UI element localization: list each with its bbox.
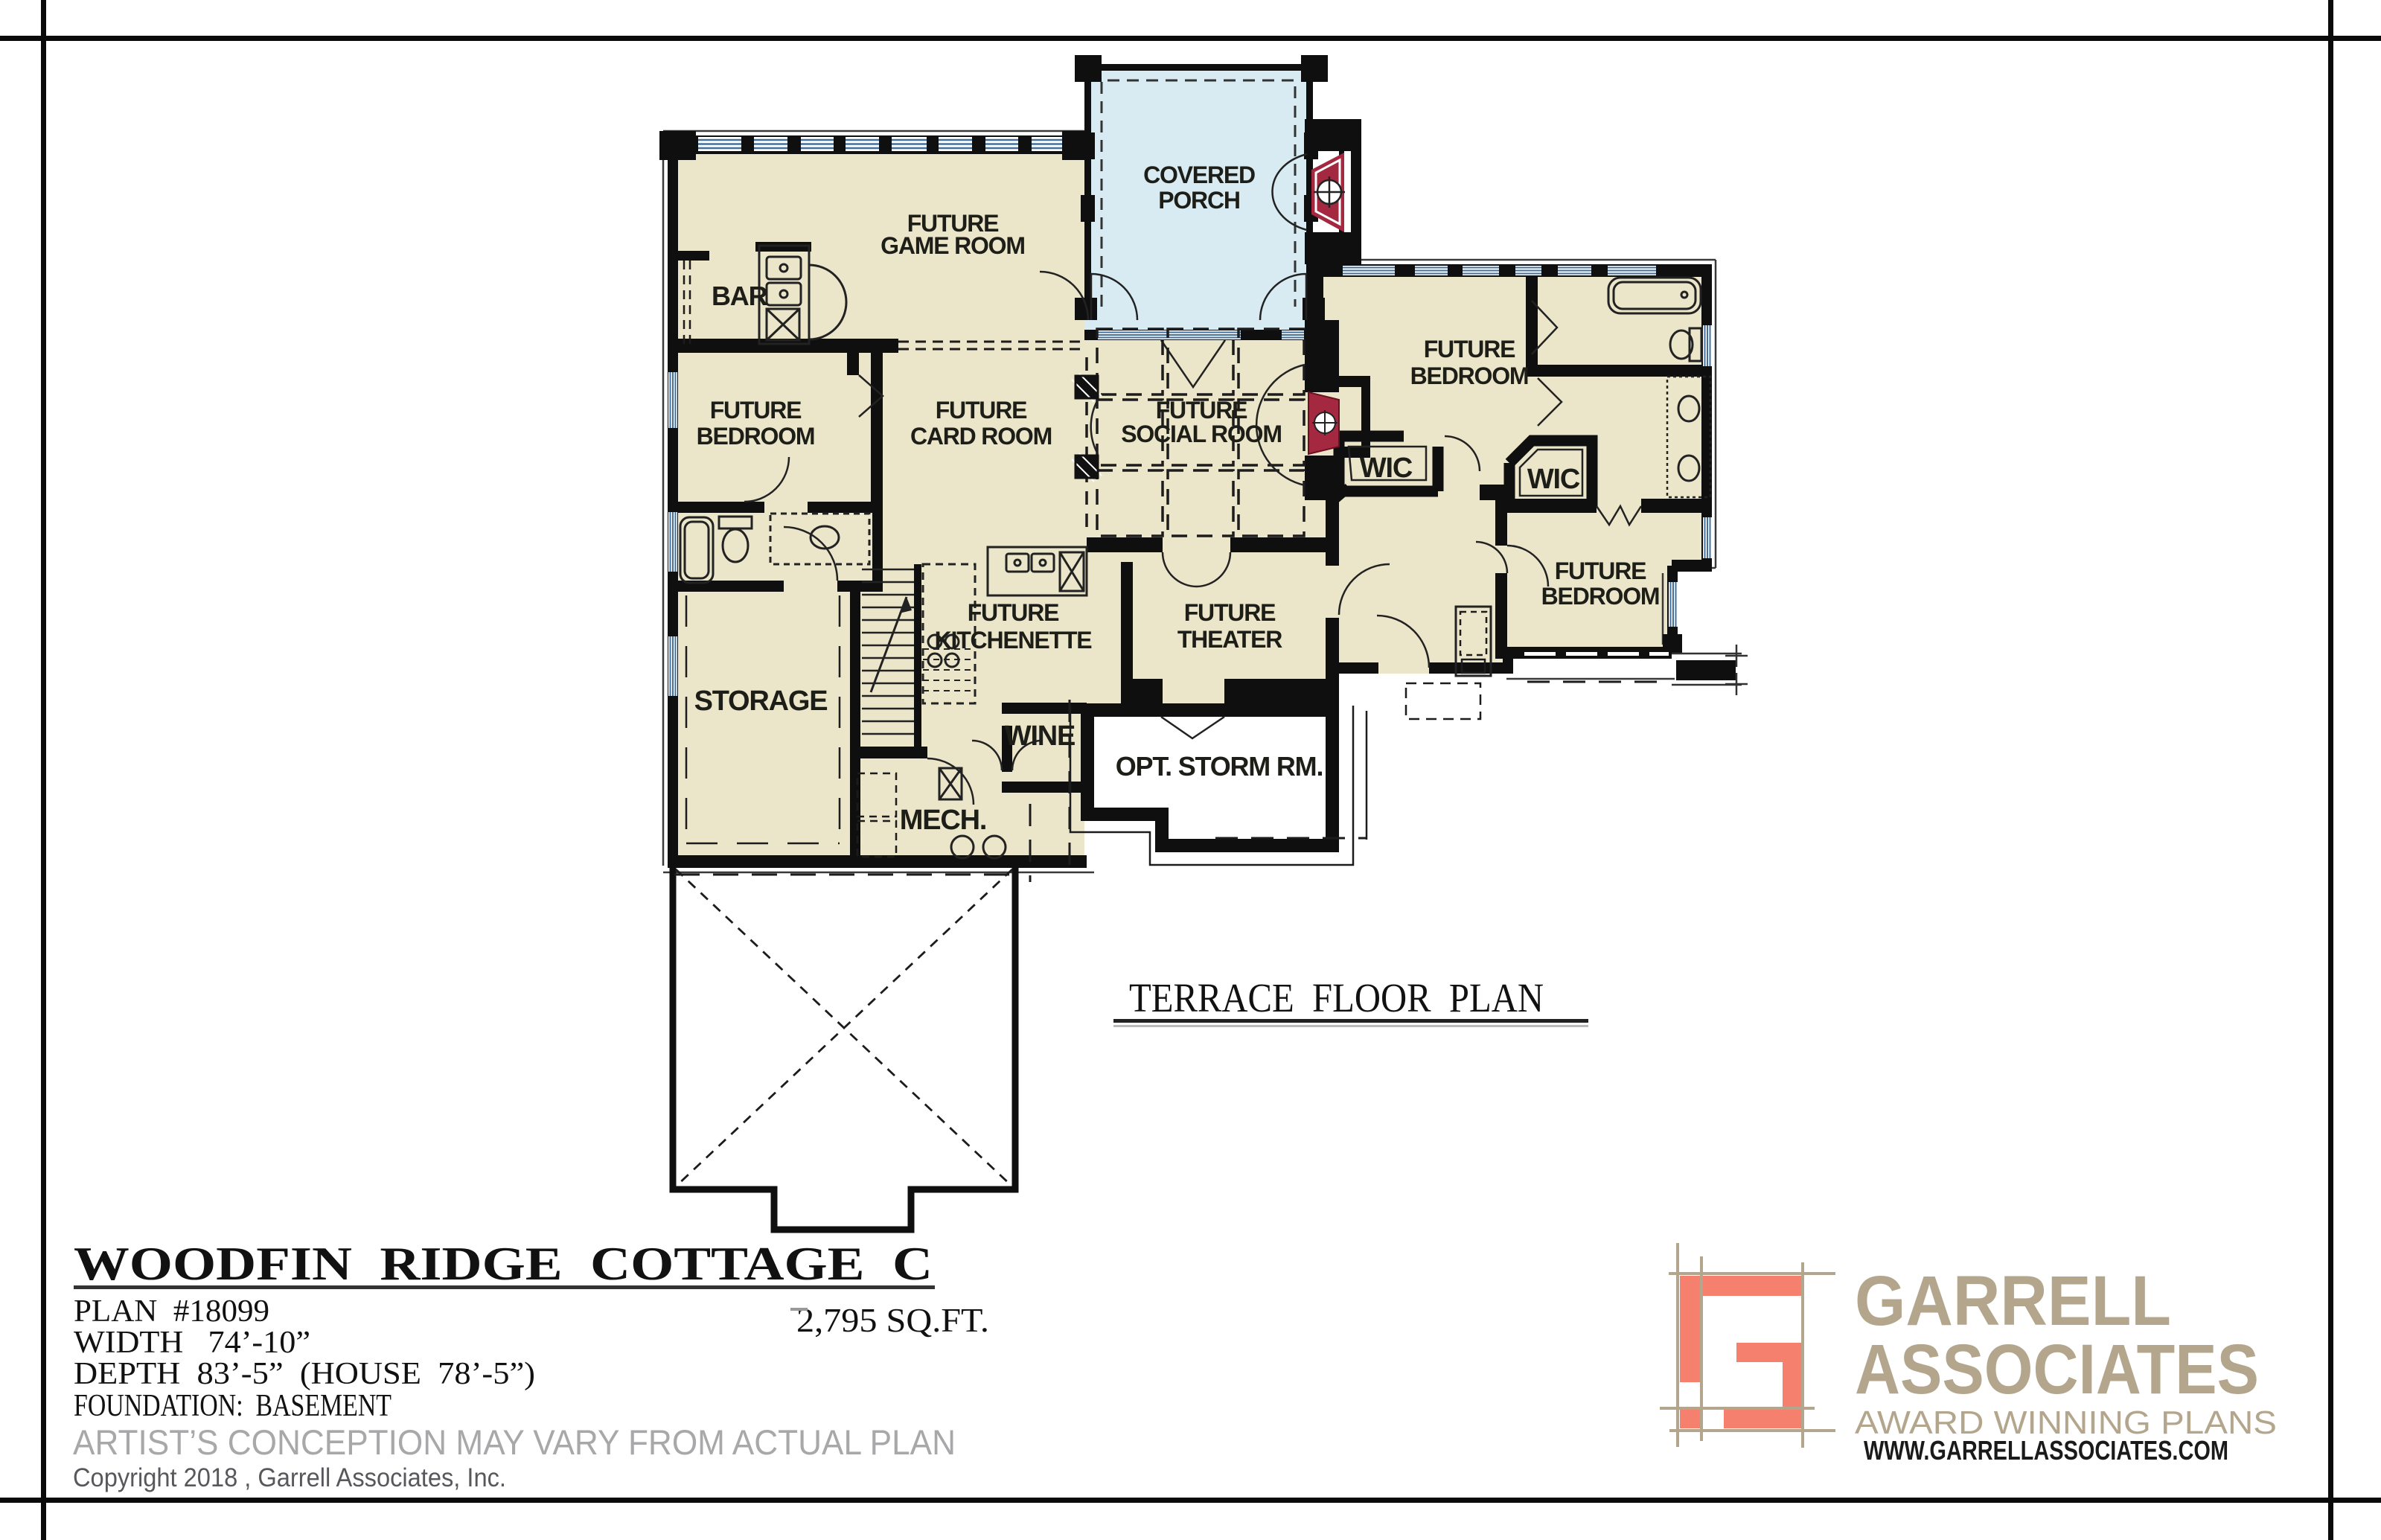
svg-text:MECH.: MECH. xyxy=(900,805,986,836)
svg-text:2,795 SQ.FT.: 2,795 SQ.FT. xyxy=(796,1301,989,1339)
svg-text:WOODFIN RIDGE COTTAGE C: WOODFIN RIDGE COTTAGE C xyxy=(74,1237,933,1290)
svg-text:COVERED: COVERED xyxy=(1143,162,1255,188)
svg-text:BAR: BAR xyxy=(712,281,768,311)
svg-text:FUTURE: FUTURE xyxy=(1555,557,1646,584)
svg-text:BEDROOM: BEDROOM xyxy=(1410,362,1529,389)
svg-text:OPT. STORM RM.: OPT. STORM RM. xyxy=(1116,751,1323,782)
svg-text:FUTURE: FUTURE xyxy=(968,599,1059,626)
svg-text:WIC: WIC xyxy=(1527,464,1580,495)
svg-text:STORAGE: STORAGE xyxy=(694,686,828,717)
svg-text:THEATER: THEATER xyxy=(1177,626,1282,653)
svg-text:BEDROOM: BEDROOM xyxy=(697,423,815,450)
svg-text:ASSOCIATES: ASSOCIATES xyxy=(1855,1330,2259,1409)
svg-text:FUTURE: FUTURE xyxy=(1156,397,1247,424)
svg-text:FUTURE: FUTURE xyxy=(710,397,802,424)
svg-text:FUTURE: FUTURE xyxy=(936,397,1027,424)
svg-text:GAME ROOM: GAME ROOM xyxy=(881,232,1025,259)
svg-text:FUTURE: FUTURE xyxy=(1424,336,1515,362)
svg-text:BEDROOM: BEDROOM xyxy=(1541,583,1660,610)
svg-text:PORCH: PORCH xyxy=(1158,187,1240,214)
svg-text:GARRELL: GARRELL xyxy=(1855,1262,2171,1341)
svg-text:WINE: WINE xyxy=(1005,721,1075,752)
svg-text:SOCIAL ROOM: SOCIAL ROOM xyxy=(1121,421,1282,447)
svg-text:PLAN #18099: PLAN #18099 xyxy=(74,1294,269,1329)
svg-text:KITCHENETTE: KITCHENETTE xyxy=(935,627,1093,654)
svg-text:WWW.GARRELLASSOCIATES.COM: WWW.GARRELLASSOCIATES.COM xyxy=(1864,1435,2228,1466)
svg-text:FOUNDATION: BASEMENT: FOUNDATION: BASEMENT xyxy=(74,1389,391,1423)
svg-text:TERRACE FLOOR PLAN: TERRACE FLOOR PLAN xyxy=(1129,975,1544,1020)
svg-text:WIDTH 74’-10”: WIDTH 74’-10” xyxy=(74,1326,310,1360)
svg-text:Copyright 2018 , Garrell Assoc: Copyright 2018 , Garrell Associates, Inc… xyxy=(73,1463,506,1492)
svg-text:FUTURE: FUTURE xyxy=(1184,599,1276,626)
svg-text:CARD ROOM: CARD ROOM xyxy=(910,423,1052,450)
svg-text:WIC: WIC xyxy=(1360,453,1413,484)
svg-text:ARTIST’S CONCEPTION MAY VARY F: ARTIST’S CONCEPTION MAY VARY FROM ACTUAL… xyxy=(73,1422,956,1462)
svg-text:DEPTH 83’-5” (HOUSE 78’-5”): DEPTH 83’-5” (HOUSE 78’-5”) xyxy=(74,1357,535,1391)
